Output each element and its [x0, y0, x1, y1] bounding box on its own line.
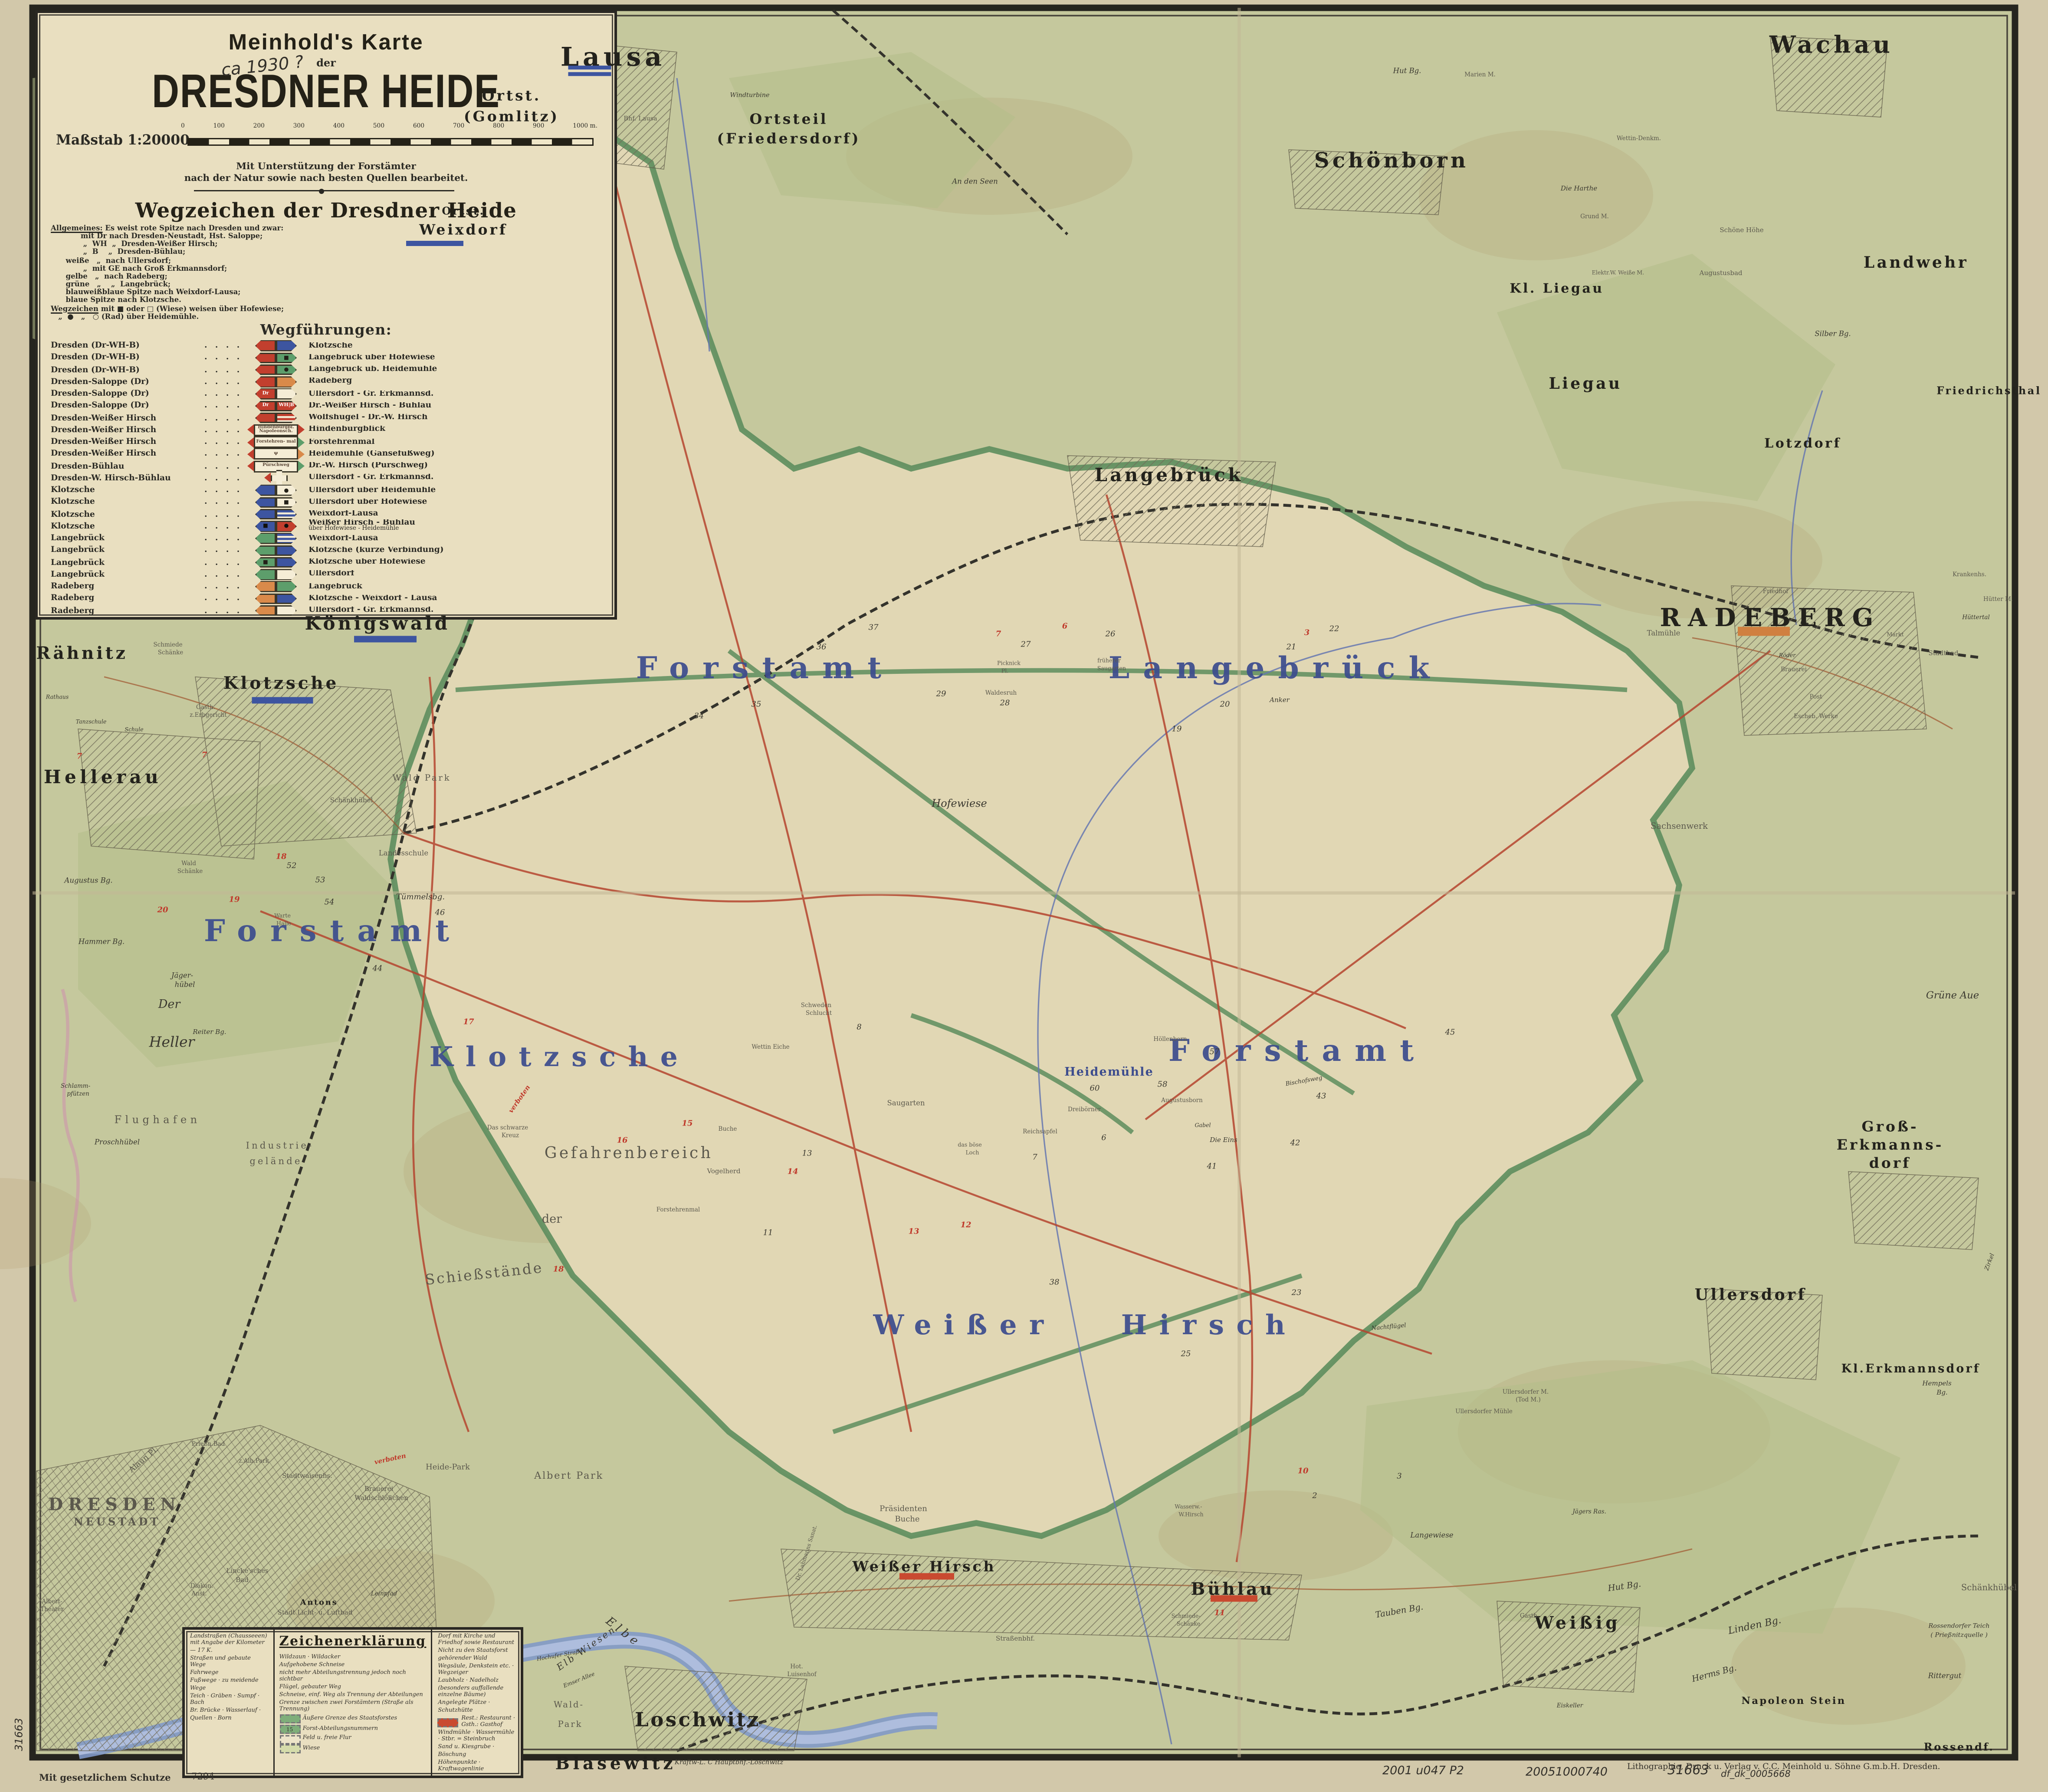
route-leader-dots: . . . . . . . [204, 486, 243, 495]
route-row: Dresden-Weißer Hirsch. . . . . . .Wolfsh… [51, 412, 604, 424]
map-label: Hellerau [44, 769, 162, 788]
map-label: Heller [149, 1035, 195, 1050]
map-label: 44 [373, 966, 383, 974]
route-from: Dresden-Saloppe (Dr) [51, 401, 204, 410]
map-label: Forstehrenmal [656, 1209, 700, 1215]
route-to: Dr.-Weißer Hirsch - Bühlau [309, 402, 604, 410]
route-to: Ullersdorf - Gr. Erkmannsd. [309, 390, 604, 398]
route-to: Ullersdorf über Hofewiese [309, 498, 604, 506]
map-label: Kl.Erkmannsdorf [1841, 1365, 1981, 1377]
handwritten-shelfmark-1: 2001 u047 P2 [1382, 1765, 1464, 1778]
legend-text-line: Wegzeichen mit ■ oder □ (Wiese) weisen ü… [51, 305, 604, 313]
map-label: 52 [287, 863, 297, 871]
route-to: Klotzsche [309, 342, 604, 350]
route-leader-dots: . . . . . . . [204, 546, 243, 555]
map-label: Forstamt [636, 653, 895, 685]
map-label: Ortst. [442, 205, 485, 216]
map-label: Picknick [997, 661, 1021, 666]
handwritten-shelfmark-3: 31663 [1667, 1764, 1709, 1778]
map-label: Friedhof [1763, 591, 1789, 597]
plate-number: 7294 [191, 1772, 214, 1782]
map-label: Waldschlößchen [354, 1496, 408, 1503]
legend-entry: Fußwege · zu meidende Wege [190, 1678, 268, 1693]
route-leader-dots: . . . . . . . [204, 534, 243, 543]
map-label: Friedrichsthal [1936, 385, 2041, 396]
map-label: 2 [1312, 1493, 1317, 1501]
map-label: 41 [1207, 1164, 1217, 1172]
map-label: 53 [315, 877, 325, 886]
map-label: der [542, 1215, 562, 1227]
route-from: Dresden-W. Hirsch-Bühlau [51, 474, 204, 483]
map-label: Sachsenwerk [1651, 822, 1708, 831]
map-label: Krankenhs. [1953, 574, 1986, 580]
map-label: Lotzdorf [1764, 438, 1841, 452]
map-label: Kraftw-L. C Hauptbhf.-Loschwitz [675, 1760, 783, 1767]
legend-col-forest: Zeichenerklärung Wildzaun · WildackerAuf… [274, 1630, 433, 1776]
map-label: das böse [958, 1142, 982, 1148]
route-from: Dresden-Weißer Hirsch [51, 437, 204, 446]
legend-entry: Teich · Gräben · Sumpf · Bach [190, 1693, 268, 1707]
route-sign-icon [243, 605, 309, 617]
route-from: Dresden-Saloppe (Dr) [51, 377, 204, 387]
route-from: Langebrück [51, 534, 204, 543]
map-label: 19 [229, 897, 240, 905]
legend-entry: Fahrwege [190, 1671, 268, 1677]
route-sign-icon [243, 413, 309, 424]
route-leader-dots: . . . . . . . [204, 606, 243, 615]
map-label: Loschwitz [635, 1710, 761, 1731]
map-label: Gasth. [196, 706, 215, 712]
map-label: Schänkhübel [330, 798, 373, 805]
map-label: Waldesruh [985, 692, 1017, 698]
map-label: Schule [125, 727, 143, 733]
map-label: Wasserw.- [1175, 1504, 1202, 1510]
map-label: 13 [908, 1229, 919, 1237]
map-label: Stadt Licht- u. Luftbad [278, 1611, 353, 1618]
map-label: Reichsapfel [1023, 1131, 1057, 1137]
zeichenerklaerung-panel: Landstraßen (Chausseeen) mit Angabe der … [182, 1627, 523, 1778]
map-label: Augustus Bg. [64, 879, 112, 886]
route-row: Dresden-Saloppe (Dr). . . . . . .Radeber… [51, 376, 604, 388]
route-sign-icon [243, 376, 309, 387]
map-label: 28 [1000, 700, 1010, 709]
route-sign-icon [243, 340, 309, 351]
map-label: Park [558, 1720, 583, 1729]
town-underline-bar [1211, 1595, 1257, 1602]
map-label: Napoleon Stein [1741, 1696, 1846, 1707]
route-sign-icon: Forstehren- mal [243, 436, 309, 448]
map-label: Klotzsche [430, 1043, 690, 1071]
route-from: Dresden-Saloppe (Dr) [51, 389, 204, 398]
map-label: Groß- [1861, 1120, 1918, 1135]
map-label: Ortst. [482, 89, 541, 104]
legend-entry: Aufgehobene Schneise [279, 1662, 427, 1669]
scanned-map-page: Meinhold's Karte der DRESDNER HEIDE Maßs… [0, 0, 2048, 1792]
legend-entry: Dorf mit Kirche und Friedhof sowie Resta… [438, 1634, 515, 1648]
route-row: Dresden-Bühlau. . . . . . .PürschwegDr.-… [51, 460, 604, 473]
route-sign-icon: ■● [243, 521, 309, 532]
legend-col-roads: Landstraßen (Chausseeen) mit Angabe der … [185, 1630, 274, 1776]
map-label: Schlamm- [61, 1085, 90, 1091]
map-label: Brauerei [364, 1487, 394, 1494]
map-label: Stadtwaisenhs. [282, 1474, 332, 1481]
zeichenerklaerung-heading: Zeichenerklärung [279, 1635, 427, 1651]
map-label: Hofewiese [932, 799, 987, 810]
map-label: Rossendf. [1924, 1741, 1995, 1752]
route-leader-dots: . . . . . . . [204, 558, 243, 567]
scale-tick: 600 [413, 124, 424, 130]
credit-line1: Mit Unterstützung der Forstämter [38, 160, 614, 172]
town-underline-bar [406, 241, 463, 246]
route-to: Klotzsche über Hofewiese [309, 558, 604, 567]
route-from: Klotzsche [51, 486, 204, 495]
route-leader-dots: . . . . . . . [204, 570, 243, 579]
map-label: Kreuz [502, 1135, 519, 1141]
map-label: Leinpfad [371, 1593, 397, 1599]
route-to: Klotzsche - Weixdorf - Lausa [309, 594, 604, 603]
route-leader-dots: . . . . . . . [204, 498, 243, 507]
map-label: 6 [1101, 1135, 1106, 1143]
town-underline-bar [568, 66, 611, 70]
scale-tick: 400 [333, 124, 345, 130]
map-label: 14 [787, 1169, 798, 1177]
route-from: Dresden-Weißer Hirsch [51, 450, 204, 459]
route-sign-icon: Dr [243, 388, 309, 400]
route-leader-dots: . . . . . . . [204, 414, 243, 423]
map-label: Saugarten [1097, 666, 1126, 672]
map-label: Industrie- [246, 1142, 314, 1152]
map-label: 25 [1181, 1351, 1191, 1359]
route-row: Dresden-Weißer Hirsch. . . . . . .ψHeide… [51, 448, 604, 460]
map-label: 16 [617, 1138, 627, 1146]
scale-tick: 700 [453, 124, 464, 130]
legend-entry: Schneise, einf. Weg als Trennung der Abt… [279, 1692, 427, 1699]
route-row: Dresden-Weißer Hirsch. . . . . . .Forste… [51, 436, 604, 448]
route-from: Klotzsche [51, 498, 204, 507]
route-sign-icon: ● [243, 485, 309, 496]
map-label: Proschhübel [95, 1140, 140, 1148]
map-label: 17 [463, 1019, 474, 1027]
map-label: Rossendorfer Teich [1928, 1624, 1989, 1630]
route-from: Radeberg [51, 606, 204, 615]
map-label: Gasth. [1520, 1615, 1539, 1621]
map-label: Bg. [1936, 1391, 1947, 1398]
map-label: Ullersdorfer Mühle [1455, 1411, 1513, 1417]
route-to: Ullersdorf [309, 571, 604, 579]
wegzeichen-heading: Wegzeichen der Dresdner Heide [38, 198, 614, 223]
map-label: Heide-Park [426, 1464, 470, 1473]
scale-bar [187, 138, 594, 146]
map-label: Brauerei [1781, 669, 1807, 675]
route-from: Dresden (Dr-WH-B) [51, 353, 204, 362]
map-label: Erkmanns- [1837, 1138, 1944, 1153]
map-label: 18 [553, 1267, 564, 1275]
map-label: Flughafen [114, 1115, 200, 1126]
map-label: Schänke [158, 652, 183, 658]
map-label: Höllenborn [1153, 1038, 1187, 1044]
legend-entry: nicht mehr Abteilungstrennung jedoch noc… [279, 1670, 427, 1684]
route-to: Weixdorf-Lausa [309, 535, 604, 543]
map-label: 7 [996, 631, 1001, 640]
map-label: Röder [1779, 653, 1796, 659]
route-to: Heidemühle (Gänsefußweg) [309, 450, 604, 458]
legend-text-line: „ mit GE nach Groß Erkmannsdorf; [51, 265, 604, 273]
map-label: Albert Park [534, 1471, 604, 1481]
route-sign-icon [243, 509, 309, 520]
map-label: 43 [1316, 1093, 1326, 1102]
map-label: Theater [40, 1608, 64, 1615]
legend-entry: 15Forst-Abteilungsnummern [279, 1725, 427, 1734]
route-row: Radeberg. . . . . . .Langebrück [51, 581, 604, 593]
map-label: Anst. [191, 1593, 207, 1599]
route-leader-dots: . . . . . . . [204, 522, 243, 531]
wegfuehrungen-heading: Wegführungen: [38, 322, 614, 338]
map-label: Forstamt [204, 916, 463, 948]
map-label: Wachau [1769, 35, 1894, 59]
map-label: Luisenhof [787, 1674, 816, 1680]
legend-entry: Wegsäule, Denkstein etc. · Wegzeiger [438, 1664, 515, 1678]
map-label: Heidemühle [1064, 1068, 1154, 1080]
map-label: 11 [1214, 1610, 1225, 1618]
map-label: Schweden [801, 1004, 831, 1011]
route-leader-dots: . . . . . . . [204, 582, 243, 591]
map-label: Hut Bg. [1393, 69, 1421, 76]
divider [194, 190, 454, 191]
map-label: Der [158, 1000, 181, 1012]
map-label: Wettin Eiche [752, 1046, 789, 1052]
handwritten-shelfmark-4: df_dk_0005668 [1721, 1769, 1791, 1779]
legend-text-line: „ ● „ ○ (Rad) über Heidemühle. [51, 313, 604, 321]
route-leader-dots: . . . . . . . [204, 462, 243, 471]
map-label: Blasewitz [555, 1756, 676, 1774]
map-label: Hempels [1922, 1382, 1951, 1388]
map-label: Weißig [1535, 1616, 1621, 1634]
route-sign-icon: Hindenburgbl. Napoleonsch. [243, 424, 309, 436]
route-row: Klotzsche. . . . . . .Weixdorf-Lausa [51, 509, 604, 521]
map-label: 54 [325, 899, 335, 908]
route-to: Langebrück über Hofewiese [309, 354, 604, 362]
map-label: Silber Bg. [1815, 332, 1851, 339]
route-sign-icon [243, 545, 309, 556]
route-row: Dresden (Dr-WH-B). . . . . . .●Langebrüc… [51, 364, 604, 376]
credit-line2: nach der Natur sowie nach besten Quellen… [38, 172, 614, 184]
map-label: Schänke [1177, 1621, 1200, 1627]
map-label: Wald Park [393, 774, 451, 783]
legend-entry: Grenze zwischen zwei Forstämtern (Straße… [279, 1700, 427, 1714]
route-to: Ullersdorf - Gr. Erkmannsd. [309, 607, 604, 615]
map-label: Klotzsche [223, 676, 339, 694]
map-label: Marien M. [1464, 74, 1496, 80]
scale-label: Maßstab 1:20000 [56, 133, 190, 148]
route-leader-dots: . . . . . . . [204, 474, 243, 483]
route-row: Langebrück. . . . . . .■Klotzsche über H… [51, 557, 604, 569]
map-label: 21 [1287, 644, 1296, 653]
route-from: Klotzsche [51, 522, 204, 531]
map-label: Loch [965, 1150, 979, 1156]
route-sign-icon: DrWH|B [243, 400, 309, 412]
map-label: 3 [1397, 1474, 1401, 1482]
map-label: 37 [869, 625, 879, 633]
map-label: Stadtbad [1928, 651, 1958, 658]
map-label: 29 [936, 691, 946, 699]
map-label: 13 [802, 1151, 812, 1159]
route-leader-dots: . . . . . . . [204, 510, 243, 519]
map-label: An den Seen [952, 180, 998, 187]
map-label: Schmiede- [1172, 1614, 1201, 1619]
legend-entry: Höhenpunkte · Kraftwagenlinie [438, 1760, 515, 1774]
route-to: Langebrück [309, 583, 604, 591]
map-label: 42 [1290, 1140, 1300, 1149]
route-leader-dots: . . . . . . . [204, 341, 243, 350]
map-label: Schönborn [1314, 151, 1469, 172]
route-sign-icon: ● [243, 364, 309, 376]
map-label: Landwehr [1864, 255, 1969, 271]
route-to: Forstehrenmal [309, 438, 604, 446]
route-from: Dresden (Dr-WH-B) [51, 365, 204, 374]
route-row: Klotzsche. . . . . . .■Ullersdorf über H… [51, 496, 604, 509]
map-label: 38 [1050, 1280, 1060, 1288]
map-label: 11 [763, 1230, 773, 1238]
map-label: pfützen [67, 1093, 89, 1099]
map-label: Hirsch [1121, 1311, 1297, 1339]
map-label: gelände [249, 1158, 302, 1167]
map-label: Forstamt [1168, 1036, 1427, 1067]
town-underline-bar [568, 72, 611, 76]
route-to: Weixdorf-Lausa [309, 510, 604, 519]
legend-entry: Laubholz · Nadelholz (besonders auffalle… [438, 1678, 515, 1700]
map-label: Schöne Höhe [1720, 228, 1763, 235]
map-label: Anker [1270, 698, 1290, 705]
map-label: 23 [1292, 1290, 1302, 1298]
map-label: Prießn.Bad [192, 1443, 225, 1449]
route-sign-icon [243, 569, 309, 580]
legend-entry: Landstraßen (Chausseeen) mit Angabe der … [190, 1634, 268, 1655]
map-label: Bhf. Lausa [624, 116, 657, 123]
map-label: 7 [202, 752, 207, 761]
map-label: Rittergut [1928, 1674, 1961, 1681]
legend-entry: Nicht zu den Staatsforst gehörender Wald [438, 1648, 515, 1663]
route-row: Langebrück. . . . . . .Klotzsche (kurze … [51, 545, 604, 557]
map-label: Gabel [1195, 1123, 1211, 1129]
map-label: Eiskeller [1557, 1705, 1583, 1711]
legend-text-line: „ WH „ Dresden-Weißer Hirsch; [51, 241, 604, 249]
map-label: Liegau [1549, 376, 1622, 392]
map-label: Rathaus [46, 695, 69, 700]
route-to: Hindenburgblick [309, 426, 604, 434]
map-label: Hütter M. [1983, 598, 2013, 604]
map-label: 19 [1172, 726, 1182, 735]
scale-tick: 300 [293, 124, 305, 130]
map-label: z.Alb.Park [239, 1460, 269, 1466]
scale-tick: 200 [253, 124, 265, 130]
map-label: W.Hirsch [1178, 1512, 1203, 1518]
map-label: 20 [1220, 702, 1230, 710]
map-label: Schänkhübel [1961, 1584, 2017, 1592]
map-label: z.Erbgericht [190, 714, 226, 720]
map-label: Königswald [305, 615, 450, 634]
map-label: Langebrück [1109, 653, 1443, 685]
map-label: Reiter Bg. [193, 1030, 226, 1037]
town-underline-bar [899, 1573, 954, 1580]
town-underline-bar [354, 636, 417, 643]
legend-entry: Rest.: Restaurant · Gsth.: Gasthof [438, 1715, 515, 1730]
map-label: Tanzschule [76, 719, 107, 725]
map-label: Schänke [177, 870, 203, 876]
map-label: (Gomlitz) [464, 110, 559, 125]
map-label: 10 [1297, 1468, 1308, 1477]
legend-text-line: blaue Spitze nach Klotzsche. [51, 297, 604, 305]
map-label: (Friedersdorf) [717, 132, 860, 147]
route-from: Langebrück [51, 546, 204, 555]
map-label: 46 [435, 910, 445, 918]
route-row: Dresden-Saloppe (Dr). . . . . . .DrUller… [51, 388, 604, 400]
map-label: 8 [857, 1024, 861, 1033]
map-label: Jägers Ras. [1572, 1511, 1606, 1517]
route-to: Wolfshügel - Dr.-W. Hirsch [309, 414, 604, 422]
map-label: Langewiese [1410, 1533, 1453, 1541]
map-label: dorf [1869, 1156, 1911, 1172]
allgemeines-block: Allgemeines: Es weist rote Spitze nach D… [51, 225, 604, 322]
map-label: Post [1809, 696, 1822, 702]
legend-text-line: mit Dr nach Dresden-Neustadt, Hst. Salop… [51, 233, 604, 241]
map-label: Das schwarze [487, 1127, 528, 1133]
route-sign-icon: ■ [243, 557, 309, 568]
map-label: Weißer Hirsch [853, 1560, 996, 1575]
route-row: Dresden-Saloppe (Dr). . . . . . .DrWH|BD… [51, 400, 604, 412]
map-label: Windturbine [730, 93, 769, 99]
map-label: Rähnitz [36, 646, 128, 664]
legend-entry: Äußere Grenze des Staatsforstes [279, 1715, 427, 1724]
map-label: 60 [1090, 1086, 1100, 1094]
route-sign-icon [243, 470, 309, 487]
route-leader-dots: . . . . . . . [204, 594, 243, 603]
legend-entry: Flügel, gebauter Weg [279, 1684, 427, 1691]
route-list: Dresden (Dr-WH-B). . . . . . .KlotzscheD… [51, 340, 604, 617]
map-label: Kl. Liegau [1510, 283, 1604, 297]
route-row: Radeberg. . . . . . .Klotzsche - Weixdor… [51, 593, 604, 605]
map-label: Jäger- [171, 974, 193, 981]
map-label: 15 [682, 1121, 693, 1129]
route-leader-dots: . . . . . . . [204, 365, 243, 374]
map-label: Weißer [873, 1311, 1056, 1339]
map-label: Saugarten [887, 1101, 925, 1109]
route-row: Dresden-Weißer Hirsch. . . . . . .Hinden… [51, 424, 604, 436]
legend-entry: Wiese [279, 1745, 427, 1754]
route-leader-dots: . . . . . . . [204, 377, 243, 387]
legend-text-line: weiße „ nach Ullersdorf; [51, 257, 604, 265]
map-label: Schmiede [153, 644, 182, 650]
map-label: Grund M. [1580, 216, 1609, 222]
map-label: Hammer Bg. [79, 940, 125, 947]
route-row: Klotzsche. . . . . . .●Ullersdorf über H… [51, 484, 604, 496]
route-leader-dots: . . . . . . . [204, 353, 243, 362]
scale-tick: 0 [181, 124, 185, 130]
map-label: Hot. [790, 1666, 803, 1672]
map-title-line1: Meinhold's Karte [38, 30, 614, 56]
map-label: Ortsteil [750, 112, 828, 128]
map-label: 7 [1032, 1155, 1037, 1163]
map-label: Talmühle [1647, 631, 1680, 639]
route-sign-icon: ■ [243, 497, 309, 508]
map-label: 12 [960, 1222, 971, 1231]
route-from: Langebrück [51, 570, 204, 579]
map-label: NEUSTADT [74, 1516, 161, 1527]
route-from: Dresden-Weißer Hirsch [51, 414, 204, 423]
map-label: 18 [276, 854, 286, 862]
town-underline-bar [1738, 627, 1790, 636]
map-label: Albert- [42, 1601, 62, 1607]
route-row: Langebrück. . . . . . .Weixdorf-Lausa [51, 532, 604, 545]
